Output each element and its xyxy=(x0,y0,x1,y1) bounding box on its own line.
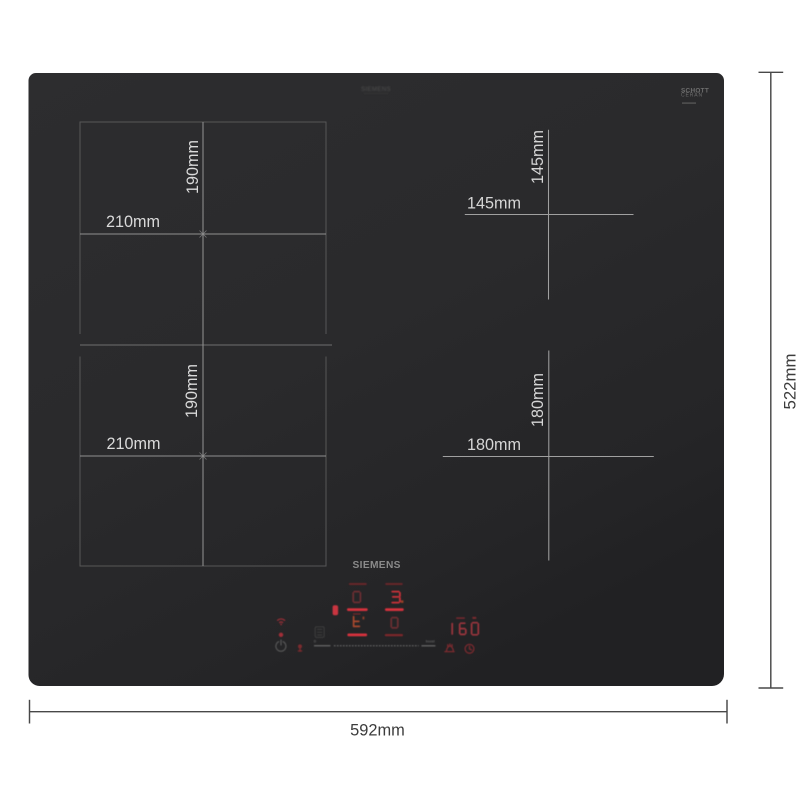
svg-text:145mm: 145mm xyxy=(467,195,521,213)
svg-text:boost: boost xyxy=(426,640,435,644)
svg-text:180mm: 180mm xyxy=(529,373,547,427)
svg-text:SIEMENS: SIEMENS xyxy=(361,86,391,93)
svg-text:180mm: 180mm xyxy=(467,436,521,454)
svg-text:210mm: 210mm xyxy=(106,213,160,231)
svg-text:190mm: 190mm xyxy=(183,364,201,418)
svg-text:592mm: 592mm xyxy=(350,722,405,740)
svg-text:SIEMENS: SIEMENS xyxy=(353,560,401,571)
svg-text:CERAN: CERAN xyxy=(681,93,703,99)
svg-text:190mm: 190mm xyxy=(184,140,202,194)
svg-text:522mm: 522mm xyxy=(781,354,800,410)
svg-text:210mm: 210mm xyxy=(107,435,161,453)
svg-text:145mm: 145mm xyxy=(529,130,547,184)
